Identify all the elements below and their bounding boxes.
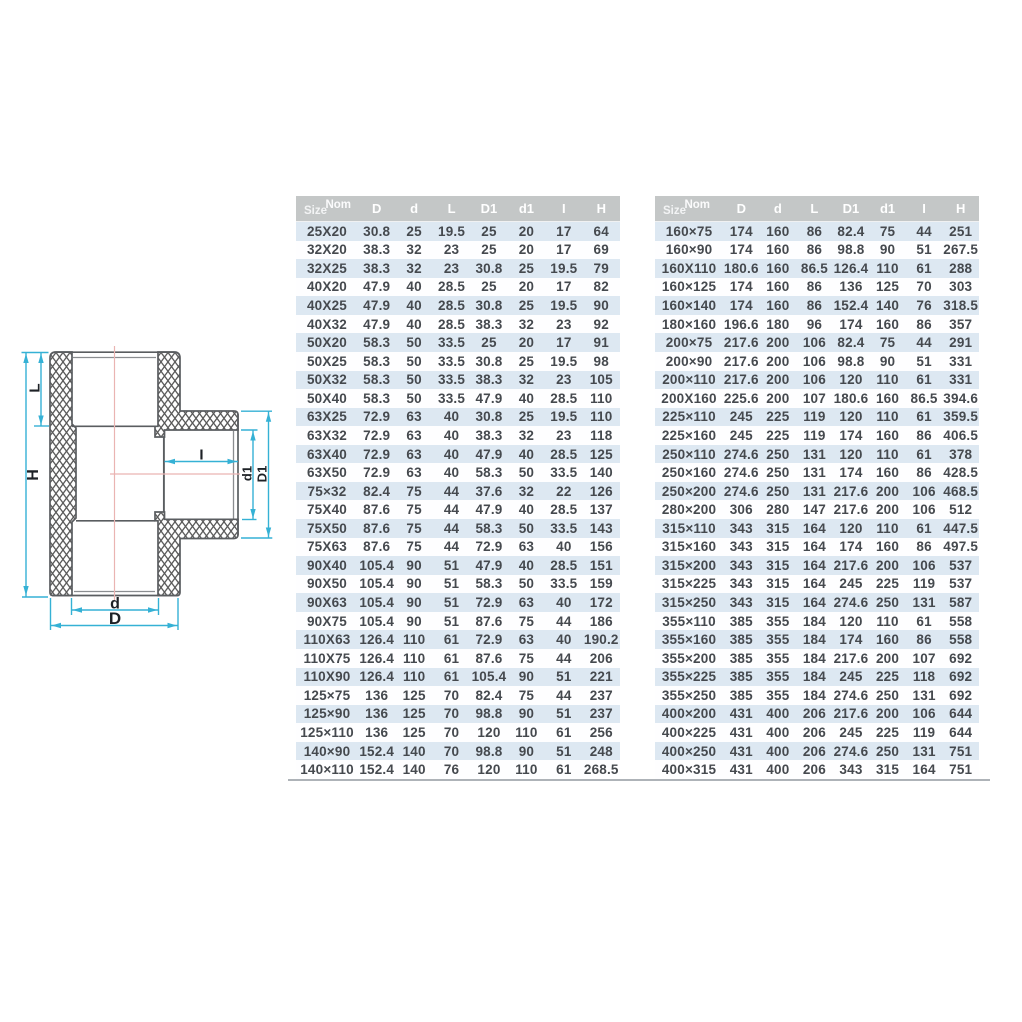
svg-text:D1: D1: [255, 466, 270, 483]
svg-text:D: D: [109, 609, 121, 628]
svg-text:I: I: [199, 447, 203, 464]
svg-text:d1: d1: [240, 466, 255, 481]
svg-text:L: L: [27, 383, 44, 392]
svg-text:H: H: [25, 469, 42, 481]
